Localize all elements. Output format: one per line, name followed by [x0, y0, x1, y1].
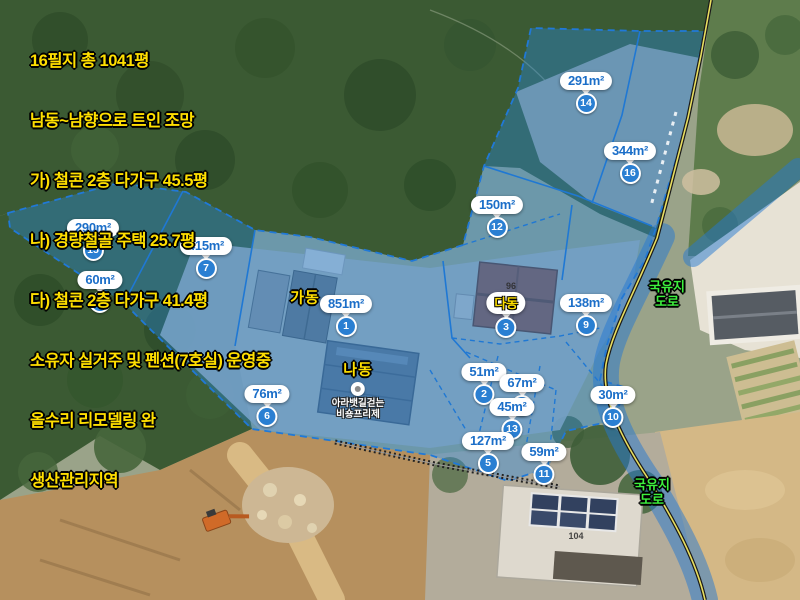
parcel-area-label: 59m²: [521, 443, 566, 461]
description-line: 남동~남향으로 트인 조망: [30, 111, 271, 131]
building-number-badge: 3: [495, 317, 516, 338]
parcel-area-label: 150m²: [471, 196, 523, 214]
description-line: 소유자 실거주 및 펜션(7호실) 운영중: [30, 351, 271, 371]
parcel-area-label: 30m²: [590, 386, 635, 404]
poi-marker: 아라뱃길걷는 비숑프리제: [332, 382, 384, 420]
poi-dot-icon: [351, 382, 365, 396]
parcel-number-badge: 5: [478, 453, 499, 474]
cadastral-number: 96: [506, 281, 516, 291]
parcel-number-badge: 1: [336, 316, 357, 337]
parcel-marker: 30m²10: [590, 386, 635, 428]
description-line: 나) 경량철골 주택 25.7평: [30, 231, 271, 251]
parcel-marker: 851m²1: [320, 295, 372, 337]
state-road-label-line2: 도로: [649, 294, 685, 309]
parcel-area-label: 138m²: [560, 294, 612, 312]
parcel-marker: 291m²14: [560, 72, 612, 114]
description-line: 생산관리지역: [30, 471, 271, 491]
state-road-label-line2: 도로: [634, 492, 670, 507]
parcel-number-badge: 9: [576, 315, 597, 336]
poi-name-line2: 비숑프리제: [332, 409, 384, 420]
parcel-marker: 344m²16: [604, 142, 656, 184]
building-label-dadong: 다동: [486, 292, 525, 314]
state-road-label-line1: 국유지: [649, 279, 685, 294]
parcel-marker: 150m²12: [471, 196, 523, 238]
description-line: 올수리 리모델링 완: [30, 411, 271, 431]
building-label: 나동: [343, 359, 373, 380]
cadastral-number: 104: [568, 531, 583, 541]
state-road-label: 국유지도로: [634, 477, 670, 507]
parcel-number-badge: 10: [603, 407, 624, 428]
parcel-area-label: 344m²: [604, 142, 656, 160]
parcel-marker: 127m²5: [462, 432, 514, 474]
parcel-number-badge: 16: [620, 163, 641, 184]
parcel-area-label: 45m²: [489, 398, 534, 416]
state-road-label: 국유지도로: [649, 279, 685, 309]
parcel-area-label: 67m²: [499, 374, 544, 392]
parcel-number-badge: 14: [576, 93, 597, 114]
parcel-area-label: 127m²: [462, 432, 514, 450]
description-line: 다) 철콘 2층 다가구 41.4평: [30, 291, 271, 311]
parcel-area-label: 291m²: [560, 72, 612, 90]
parcel-marker: 138m²9: [560, 294, 612, 336]
parcel-area-label: 851m²: [320, 295, 372, 313]
description-line: 가) 철콘 2층 다가구 45.5평: [30, 171, 271, 191]
parcel-number-badge: 11: [534, 464, 555, 485]
description-line: 16필지 총 1041평: [30, 51, 271, 71]
building-marker-dadong: 다동 3: [486, 292, 525, 338]
annotated-satellite-map: 다동 3 아라뱃길걷는 비숑프리제 291m²14344m²16150m²122…: [0, 0, 800, 600]
poi-name-line1: 아라뱃길걷는: [332, 398, 384, 409]
parcel-number-badge: 12: [487, 217, 508, 238]
building-label: 가동: [290, 287, 320, 308]
property-description: 16필지 총 1041평 남동~남향으로 트인 조망 가) 철콘 2층 다가구 …: [30, 11, 271, 531]
state-road-label-line1: 국유지: [634, 477, 670, 492]
parcel-marker: 59m²11: [521, 443, 566, 485]
